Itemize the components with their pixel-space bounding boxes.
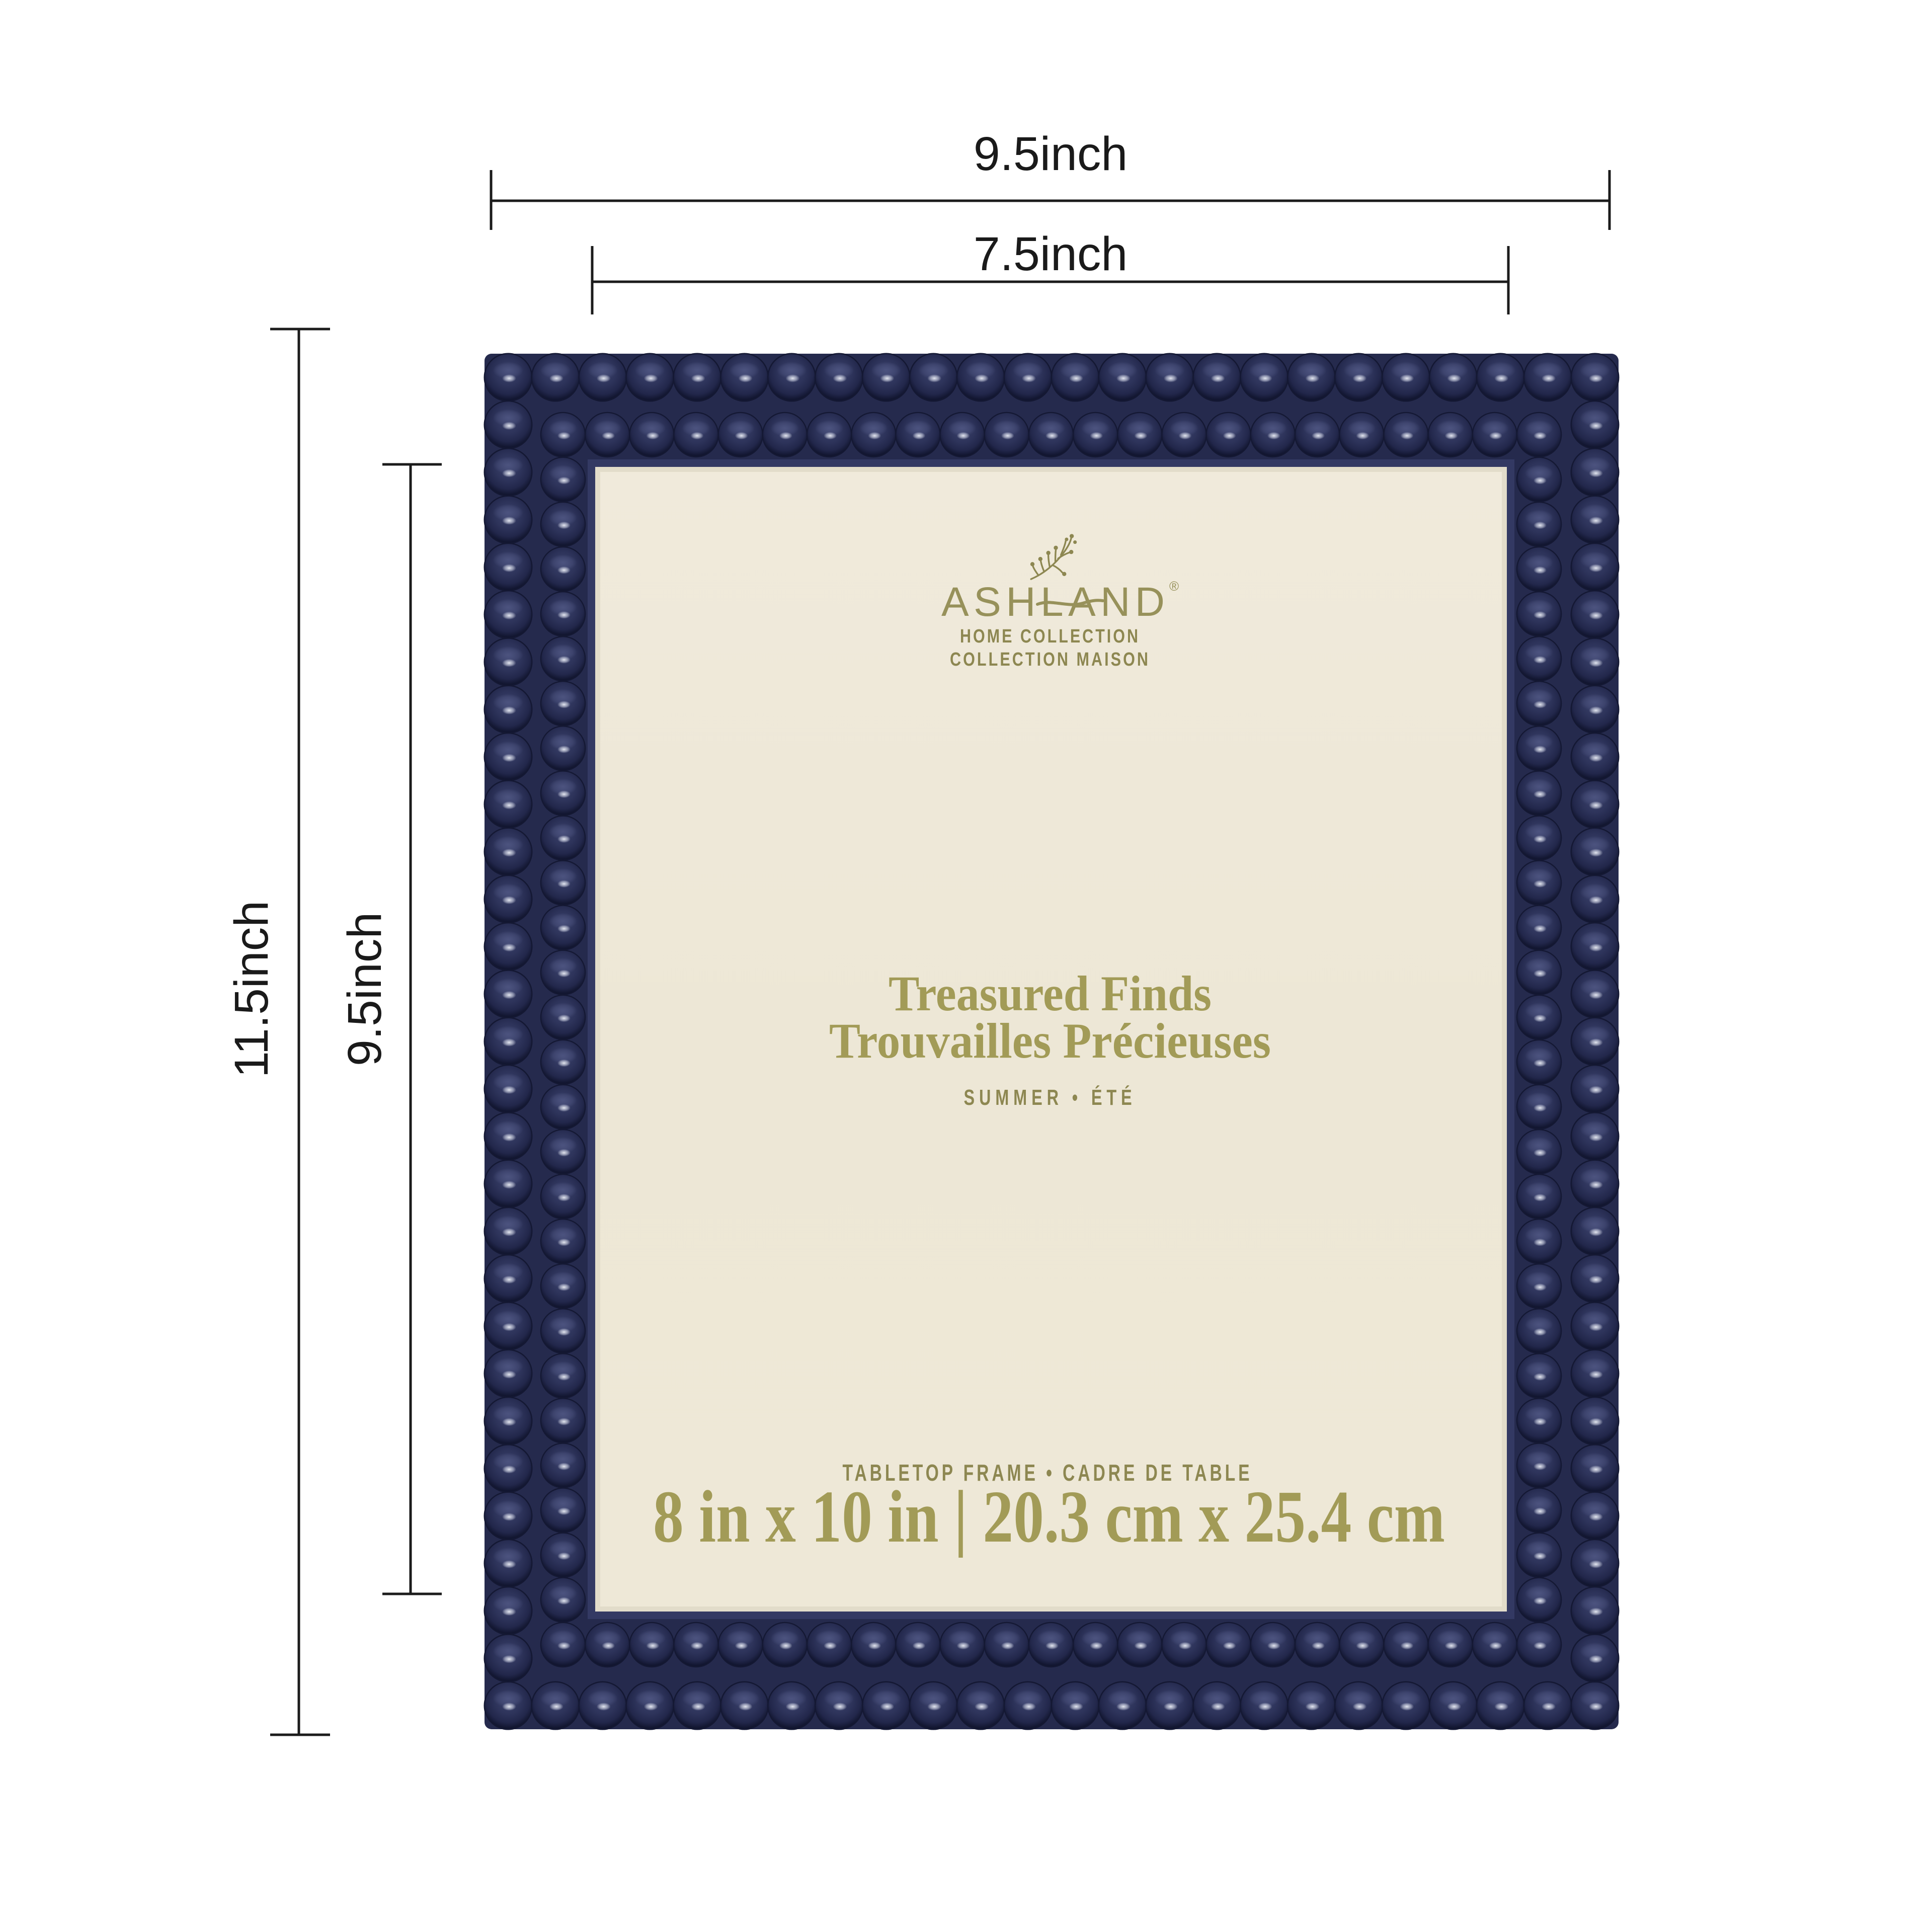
svg-text:11.5inch: 11.5inch [225,901,278,1078]
svg-text:8 in x 10 in | 20.3 cm x 25.4: 8 in x 10 in | 20.3 cm x 25.4 cm [653,1476,1445,1558]
svg-text:9.5inch: 9.5inch [338,912,391,1066]
svg-text:COLLECTION MAISON: COLLECTION MAISON [950,649,1150,670]
svg-text:SUMMER • ÉTÉ: SUMMER • ÉTÉ [964,1085,1137,1110]
svg-text:7.5inch: 7.5inch [974,227,1128,281]
svg-text:HOME COLLECTION: HOME COLLECTION [960,626,1140,647]
svg-text:Trouvailles Précieuses: Trouvailles Précieuses [829,1013,1271,1069]
svg-text:®: ® [1169,579,1179,594]
svg-text:9.5inch: 9.5inch [974,127,1128,181]
